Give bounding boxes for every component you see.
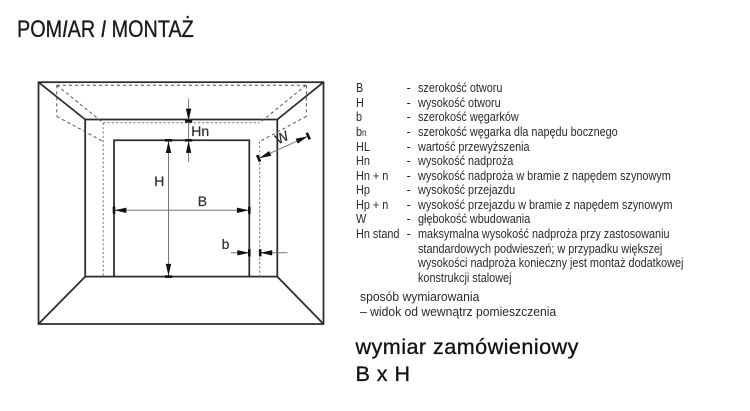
svg-text:B: B bbox=[198, 193, 207, 209]
svg-text:W: W bbox=[272, 127, 291, 147]
svg-text:H: H bbox=[154, 173, 164, 189]
svg-text:Hn: Hn bbox=[191, 123, 209, 139]
svg-text:b: b bbox=[222, 236, 230, 252]
